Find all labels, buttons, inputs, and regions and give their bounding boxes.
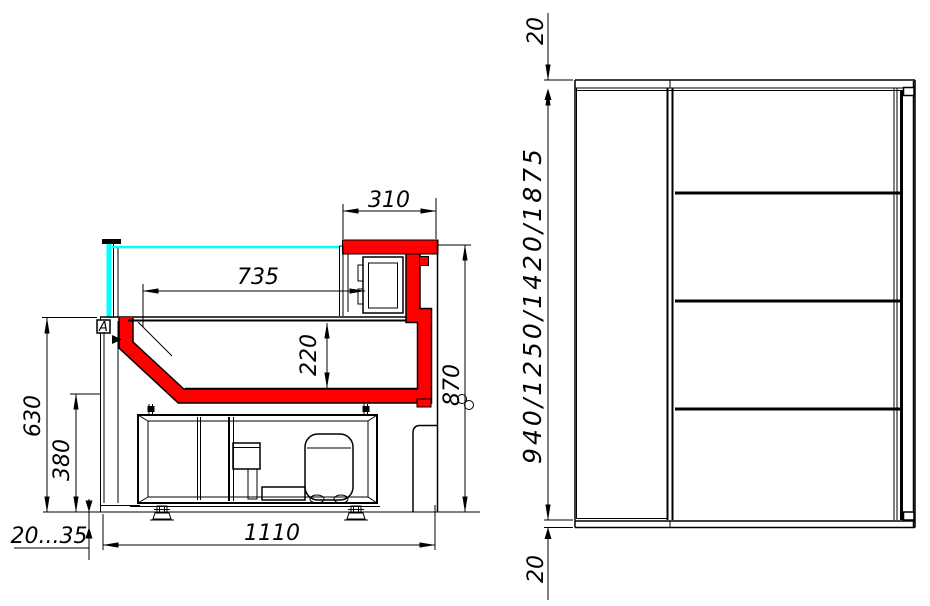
technical-drawing: A 310 735 220 630 xyxy=(0,0,930,606)
dim-870-label: 870 xyxy=(440,364,465,406)
red-liner-notch xyxy=(417,399,431,407)
unit-box xyxy=(358,257,403,313)
dim-height-options: 940/1250/1420/1875 xyxy=(518,90,548,520)
dim-top-clearance: 20 xyxy=(524,13,573,100)
dim-height-options-label: 940/1250/1420/1875 xyxy=(518,146,547,464)
bottom-panel xyxy=(575,519,915,528)
dim-foot-adjust-label: 20...35 xyxy=(11,524,88,549)
canopy-bracket xyxy=(420,257,429,266)
drain-detail xyxy=(465,401,474,410)
technical-drawing-page: A 310 735 220 630 xyxy=(0,0,930,606)
glass-front xyxy=(102,239,339,318)
canopy-bar xyxy=(343,240,439,254)
red-liner-profile xyxy=(126,240,438,407)
glass-top-cap xyxy=(102,239,121,244)
dim-foot-adjust: 20...35 xyxy=(11,499,93,560)
dim-bottom-clearance: 20 xyxy=(524,520,573,600)
dim-1110-label: 1110 xyxy=(244,521,300,546)
side-panel xyxy=(576,88,903,520)
dim-870: 870 xyxy=(438,245,472,512)
dim-220-label: 220 xyxy=(297,334,322,376)
top-panel xyxy=(575,80,915,88)
machine-bay xyxy=(130,404,380,507)
condensate-tray xyxy=(262,487,305,500)
leveling-foot-right xyxy=(344,506,368,520)
compressor xyxy=(305,434,353,503)
end-profile xyxy=(904,81,915,527)
section-view: A 310 735 220 630 xyxy=(11,188,480,560)
dim-630-label: 630 xyxy=(21,395,46,437)
dim-310-label: 310 xyxy=(368,188,410,213)
dim-top-clearance-label: 20 xyxy=(524,17,549,45)
dim-380: 380 xyxy=(50,394,100,512)
front-glass xyxy=(107,244,112,318)
front-view: 20 940/1250/1420/1875 20 xyxy=(518,13,915,600)
leveling-foot-left xyxy=(150,506,174,520)
detail-marker-label: A xyxy=(98,320,108,335)
dim-380-label: 380 xyxy=(50,439,75,481)
dim-310: 310 xyxy=(343,188,436,239)
dim-bottom-clearance-label: 20 xyxy=(524,555,549,583)
electrical-box xyxy=(233,443,260,499)
dim-220: 220 xyxy=(297,323,327,388)
dim-630: 630 xyxy=(21,318,97,513)
counter-top xyxy=(100,317,417,388)
dim-735-label: 735 xyxy=(237,265,279,290)
glass-shelf-area xyxy=(675,88,903,520)
